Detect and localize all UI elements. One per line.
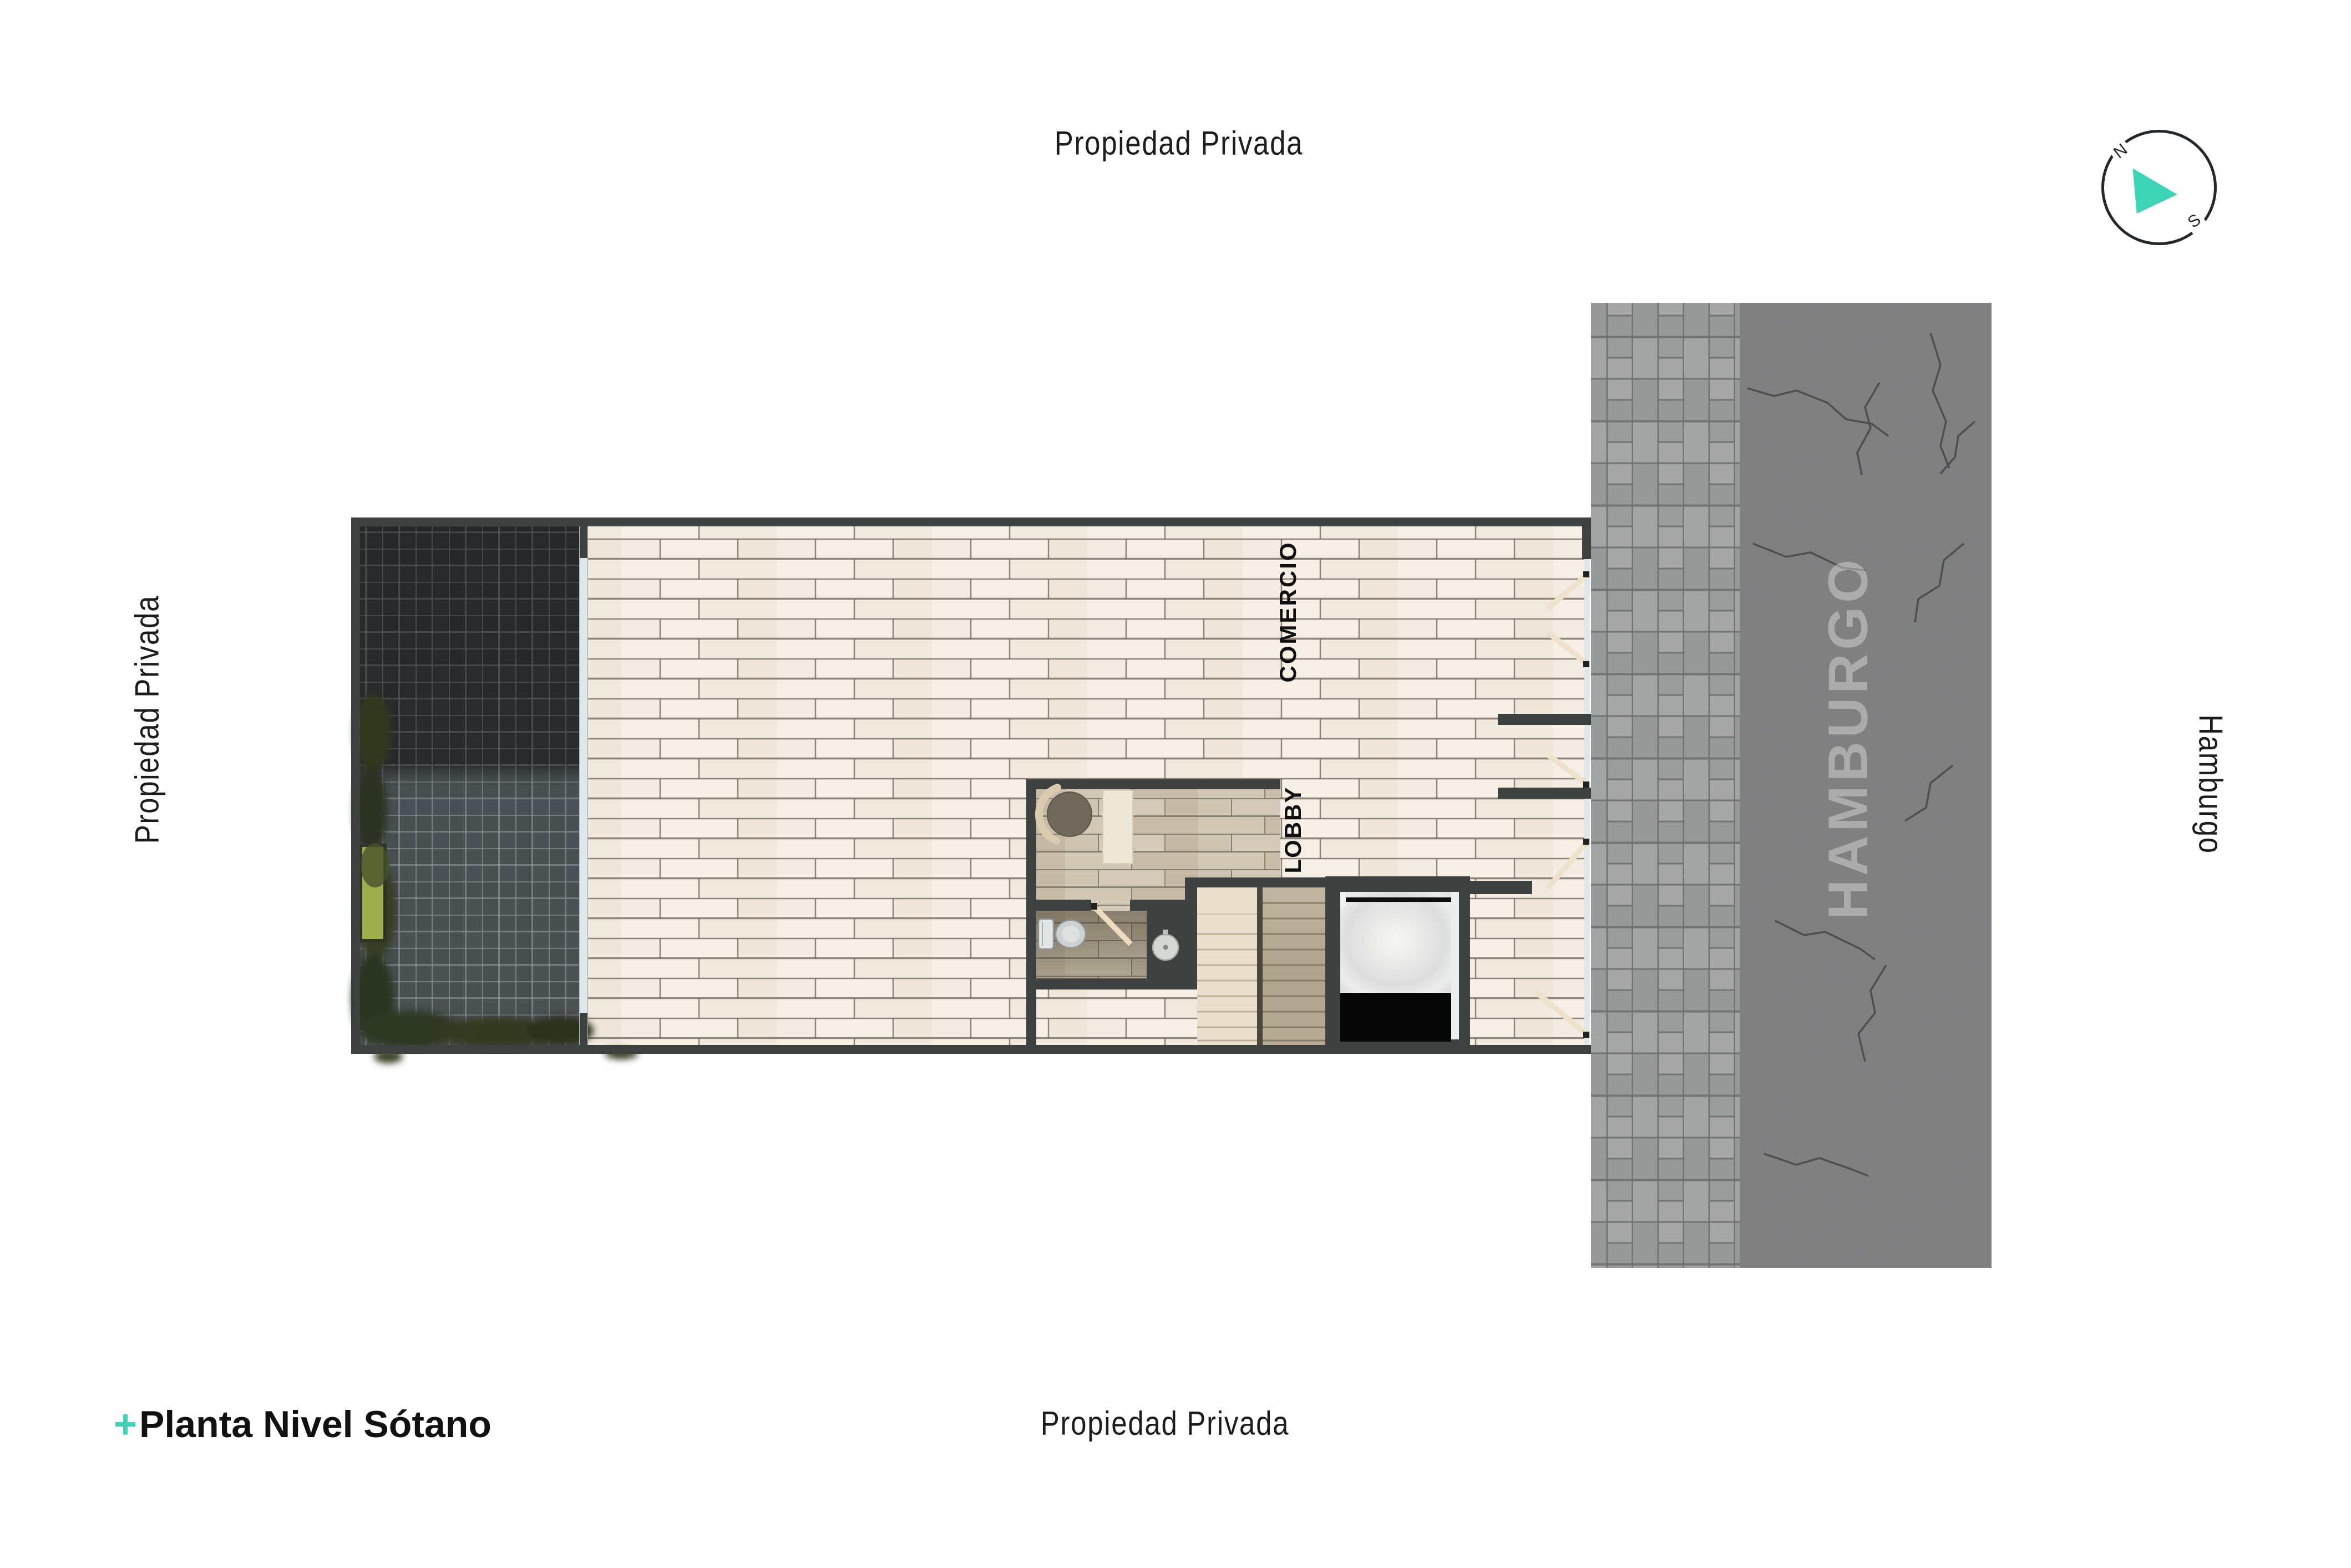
title-plus-icon: + bbox=[114, 1404, 137, 1444]
staircase bbox=[1197, 887, 1325, 1045]
lobby-table bbox=[1047, 792, 1092, 836]
plan-title: + Planta Nivel Sótano bbox=[114, 1399, 492, 1450]
elevator bbox=[1325, 876, 1470, 1045]
street-label-east: Hamburgo bbox=[2192, 714, 2230, 854]
wall-north bbox=[351, 517, 1591, 526]
elevator-cab bbox=[1340, 892, 1451, 993]
wall-lobby-north bbox=[1026, 779, 1280, 789]
boundary-label-west: Propiedad Privada bbox=[128, 595, 166, 844]
elevator-pit bbox=[1340, 993, 1451, 1042]
wall-stairs-north bbox=[1185, 877, 1332, 887]
wall-south bbox=[351, 1045, 1591, 1054]
boundary-label-north: Propiedad Privada bbox=[1055, 124, 1304, 163]
courtyard-glass-wall bbox=[580, 526, 587, 1045]
compass-needle-icon bbox=[2133, 165, 2179, 214]
sidewalk-pavers bbox=[1591, 303, 1740, 1268]
boundary-label-south: Propiedad Privada bbox=[1041, 1404, 1290, 1443]
compass-rose: N S bbox=[2101, 130, 2217, 245]
street-pavement-text: HAMBURGO bbox=[1817, 556, 1881, 920]
floor-plan-drawing bbox=[0, 0, 2351, 1568]
toilet bbox=[1038, 919, 1086, 949]
wall-bathroom-south bbox=[1026, 978, 1197, 989]
floor-plan-page: Propiedad Privada Propiedad Privada Prop… bbox=[0, 0, 2351, 1568]
plan-title-text: Planta Nivel Sótano bbox=[139, 1403, 492, 1446]
wall-west bbox=[351, 517, 360, 1054]
wall-lobby-west bbox=[1026, 779, 1036, 1046]
room-label-lobby: LOBBY bbox=[1280, 786, 1306, 874]
reception-desk bbox=[1103, 790, 1133, 864]
room-label-comercio: COMERCIO bbox=[1275, 541, 1301, 683]
